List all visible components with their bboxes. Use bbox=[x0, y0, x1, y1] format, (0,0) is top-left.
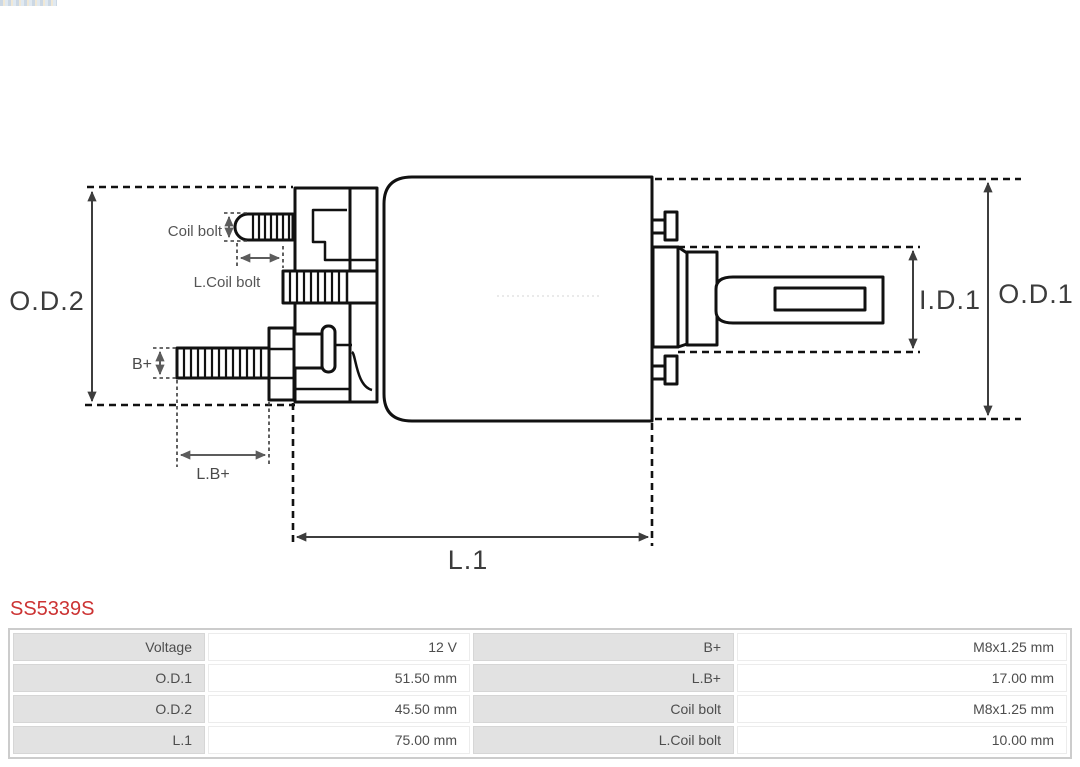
dimension-od2: O.D.2 bbox=[9, 192, 92, 401]
collar bbox=[653, 247, 717, 347]
spec-value-cell: 75.00 mm bbox=[208, 726, 470, 754]
b-plus-washer bbox=[322, 326, 335, 372]
coil-bolt-thread-section bbox=[283, 271, 377, 303]
solenoid-body bbox=[384, 177, 652, 421]
dimension-l1: L.1 bbox=[297, 537, 648, 575]
dim-label-id1: I.D.1 bbox=[919, 285, 981, 315]
spec-label-cell: Coil bolt bbox=[473, 695, 734, 723]
dim-label-l1: L.1 bbox=[448, 545, 489, 575]
dim-label-coil-bolt: Coil bolt bbox=[168, 223, 223, 240]
spec-value-cell: 17.00 mm bbox=[737, 664, 1067, 692]
part-number-link[interactable]: SS5339S bbox=[10, 598, 95, 621]
spec-table: Voltage 12 V B+ M8x1.25 mm O.D.1 51.50 m… bbox=[8, 628, 1072, 759]
spec-label-cell: L.Coil bolt bbox=[473, 726, 734, 754]
spec-label-cell: B+ bbox=[473, 633, 734, 661]
terminal-tab-bottom bbox=[652, 356, 677, 384]
dimension-l-coil-bolt: L.Coil bolt bbox=[194, 243, 283, 291]
spec-label-cell: Voltage bbox=[13, 633, 205, 661]
solenoid-dimension-diagram: O.D.2 O.D.1 I.D.1 L.1 B+ L.B+ bbox=[0, 0, 1080, 595]
dimension-od1: O.D.1 bbox=[988, 183, 1074, 415]
coil-bolt bbox=[235, 214, 293, 240]
spec-label-cell: O.D.1 bbox=[13, 664, 205, 692]
dim-label-lb-plus: L.B+ bbox=[196, 466, 229, 483]
b-plus-nut bbox=[269, 328, 294, 400]
spec-value-cell: M8x1.25 mm bbox=[737, 633, 1067, 661]
spec-label-cell: L.B+ bbox=[473, 664, 734, 692]
dim-label-od1: O.D.1 bbox=[998, 279, 1074, 309]
dim-label-b-plus: B+ bbox=[132, 356, 152, 373]
dimension-lb-plus: L.B+ bbox=[181, 455, 265, 483]
dim-label-l-coil-bolt: L.Coil bolt bbox=[194, 274, 262, 291]
spec-label-cell: O.D.2 bbox=[13, 695, 205, 723]
spec-value-cell: 12 V bbox=[208, 633, 470, 661]
dimension-id1: I.D.1 bbox=[913, 251, 981, 348]
spec-value-cell: 45.50 mm bbox=[208, 695, 470, 723]
page: O.D.2 O.D.1 I.D.1 L.1 B+ L.B+ bbox=[0, 0, 1080, 767]
plunger-slot bbox=[775, 288, 865, 310]
spec-value-cell: M8x1.25 mm bbox=[737, 695, 1067, 723]
spec-value-cell: 10.00 mm bbox=[737, 726, 1067, 754]
plunger bbox=[716, 277, 883, 323]
dim-label-od2: O.D.2 bbox=[9, 286, 85, 316]
spec-label-cell: L.1 bbox=[13, 726, 205, 754]
terminal-tab-top bbox=[652, 212, 677, 240]
spec-value-cell: 51.50 mm bbox=[208, 664, 470, 692]
